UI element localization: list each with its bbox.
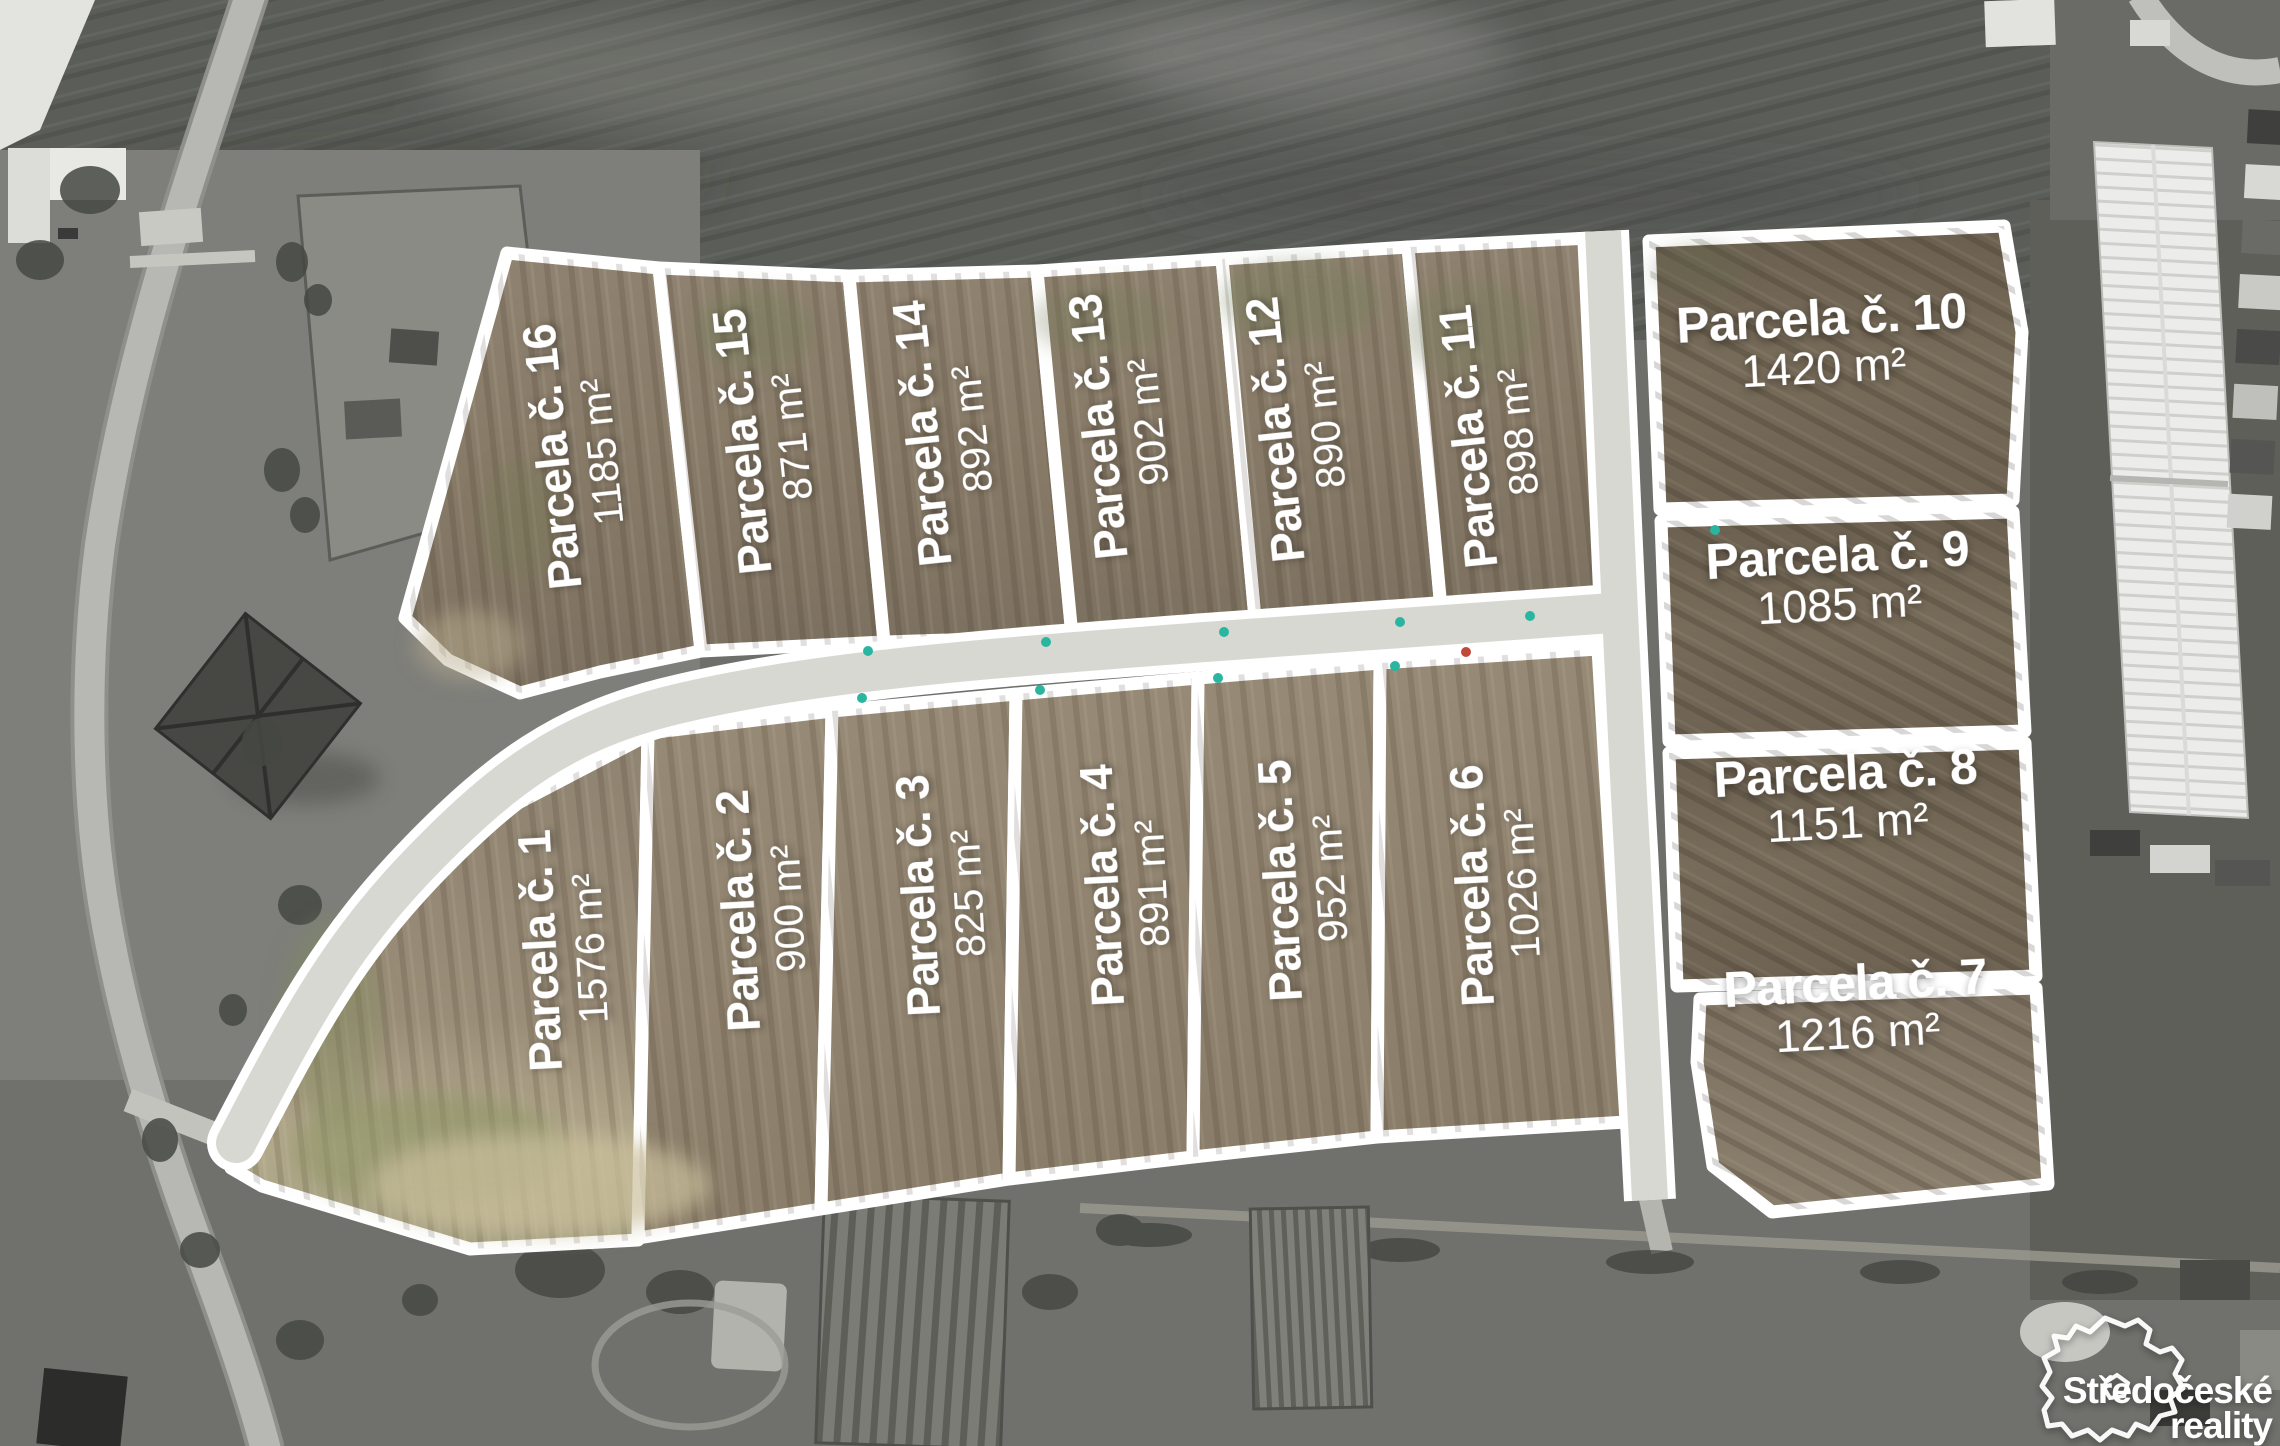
parcel-10-size: 1420 m²: [1740, 338, 1908, 398]
parcel-2-size: 900 m²: [762, 844, 815, 974]
parcel-1-size: 1576 m²: [563, 872, 617, 1025]
parcel-5-size: 952 m²: [1304, 814, 1357, 944]
parcel-9-size: 1085 m²: [1756, 575, 1924, 635]
greenhouse: [711, 1280, 788, 1372]
side-driveway: [130, 256, 255, 262]
screenshot-root: Parcela č. 16 1185 m² Parcela č. 15 871 …: [0, 0, 2280, 1446]
garden-rows-right: [1250, 1207, 1371, 1409]
parcel-4-size: 891 m²: [1126, 819, 1179, 949]
logo-line2: reality: [2170, 1405, 2273, 1446]
aerial-parcel-map: Parcela č. 16 1185 m² Parcela č. 15 871 …: [0, 0, 2280, 1446]
red-marker: [1461, 647, 1471, 657]
parcel-8-size: 1151 m²: [1766, 793, 1930, 852]
small-white-building: [1984, 0, 2056, 47]
parcel-6-size: 1026 m²: [1495, 807, 1549, 960]
garden-rows-left: [816, 1195, 1010, 1446]
dark-barn: [36, 1368, 127, 1446]
parcel-3-size: 825 m²: [942, 829, 995, 959]
parcel-7-size: 1216 m²: [1774, 1003, 1942, 1063]
